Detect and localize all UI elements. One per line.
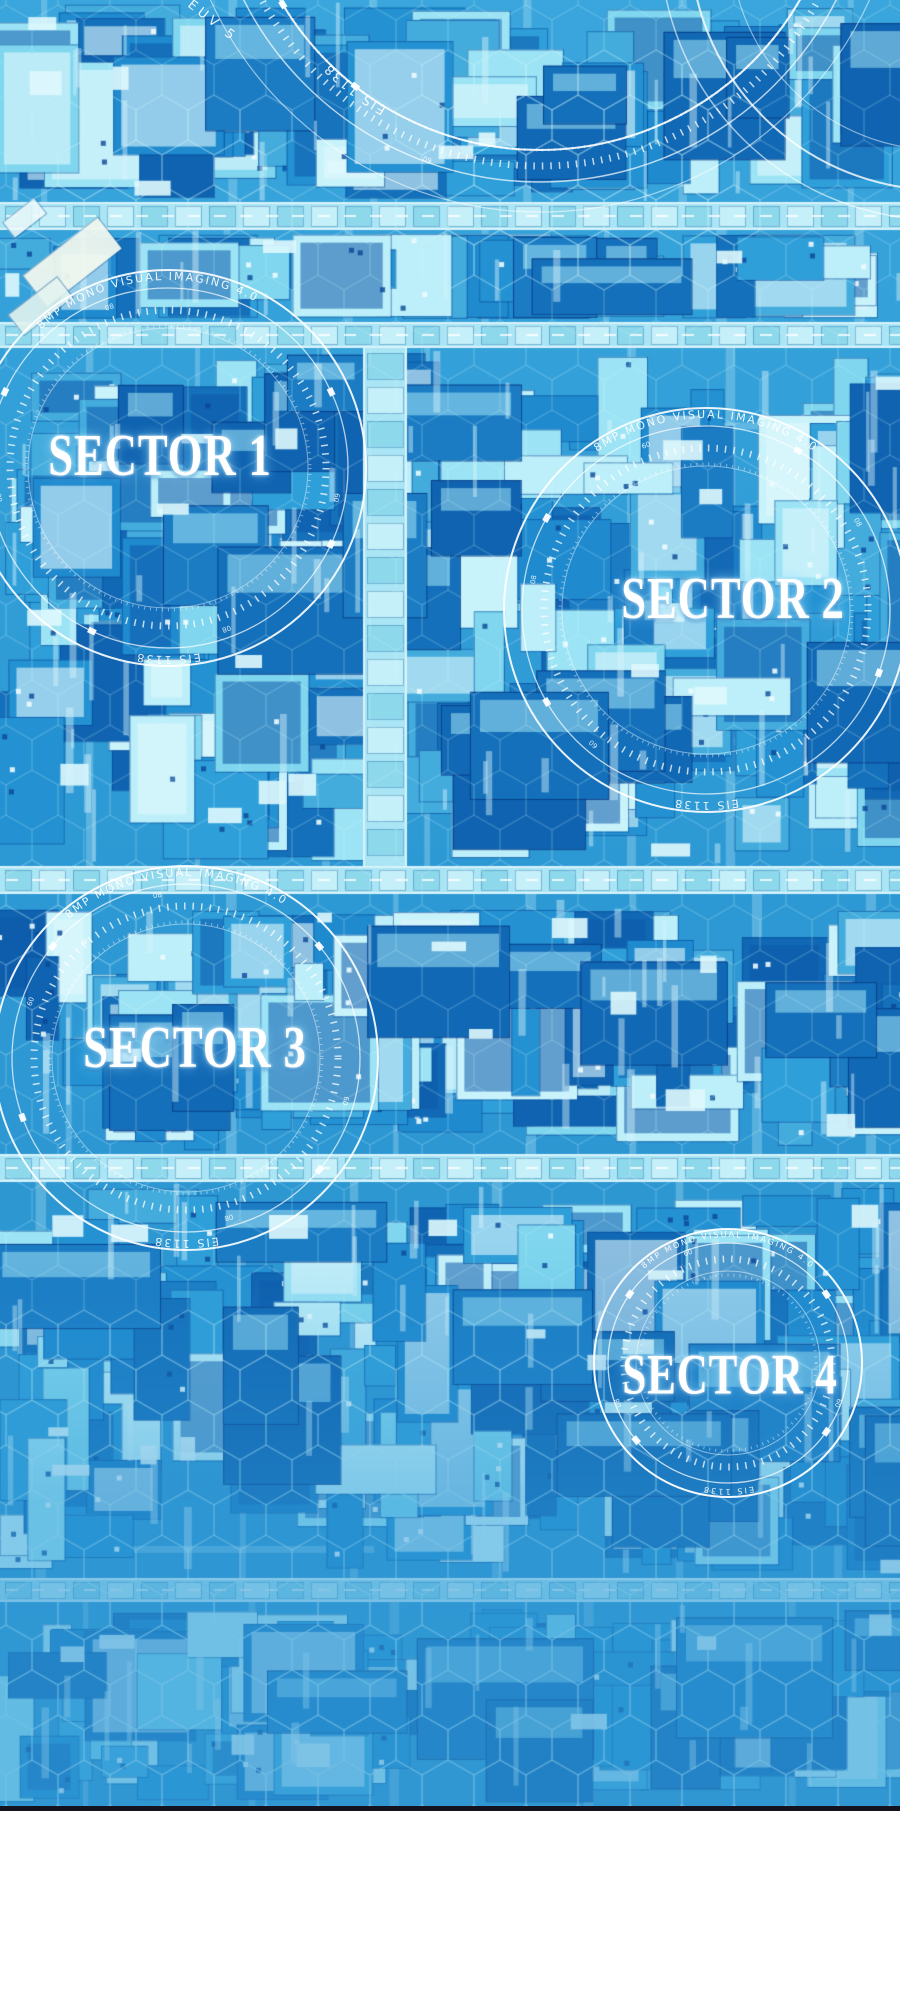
ring-marker bbox=[327, 387, 336, 397]
ring-tick-digit: 08 bbox=[104, 302, 115, 313]
ring-tick-digit: 08 bbox=[529, 575, 538, 585]
ring-marker bbox=[542, 513, 551, 523]
footer-whitespace bbox=[0, 1811, 900, 2000]
sector-2-ring[interactable]: 600860088MP MONO VISUAL IMAGING 4.0EIS 1… bbox=[504, 408, 900, 812]
ring-marker bbox=[327, 539, 336, 549]
ring-tick-digit: 08 bbox=[613, 1397, 624, 1408]
city-map: 6008EIS 1138EUV 5600860088MP MONO VISUAL… bbox=[0, 0, 900, 1806]
ring-tick-digit: 08 bbox=[221, 623, 232, 634]
ring-tick-digit: 08 bbox=[852, 517, 863, 529]
ring-tick-digit: 60 bbox=[422, 154, 433, 165]
ring-marker bbox=[0, 387, 9, 397]
ring-tick-digit: 60 bbox=[26, 996, 37, 1007]
ring-tick-digit: 60 bbox=[340, 1095, 350, 1106]
ring-marker bbox=[18, 1113, 26, 1123]
ring-marker bbox=[875, 668, 883, 678]
hud-overlay: 6008EIS 1138EUV 5600860088MP MONO VISUAL… bbox=[0, 0, 900, 1806]
ring-tick-digit: 08 bbox=[223, 1212, 234, 1222]
ring-arc-text-bottom: EIS 1138 bbox=[672, 796, 739, 812]
sector-3-ring[interactable]: 600860088MP MONO VISUAL IMAGING 4.0EIS 1… bbox=[0, 866, 378, 1250]
ring-marker bbox=[87, 627, 97, 636]
top-ring: 6008EIS 1138EUV 5 bbox=[178, 0, 900, 212]
ring-arc-text-euv: EUV 5 bbox=[185, 0, 241, 45]
ring-arc-text-top: 8MP MONO VISUAL IMAGING 4.0 bbox=[640, 1230, 817, 1270]
ring-tick-digit: 60 bbox=[0, 493, 4, 503]
ring-arc-text-bottom: EIS 1138 bbox=[152, 1234, 219, 1250]
ring-arc-text-top: 8MP MONO VISUAL IMAGING 4.0 bbox=[62, 866, 290, 921]
ring-tick-digit: 60 bbox=[588, 738, 600, 750]
ring-tick-digit: 08 bbox=[152, 891, 162, 900]
sector-1-ring[interactable]: 600860088MP MONO VISUAL IMAGING 4.0EIS 1… bbox=[0, 270, 366, 666]
ring-tick-digit: 60 bbox=[332, 493, 341, 503]
ring-arc-text-bottom: EIS 1138 bbox=[701, 1484, 755, 1496]
ring-arc-text-bottom: EIS 1138 bbox=[134, 650, 201, 666]
top-right-ring bbox=[660, 0, 900, 220]
ring-tick-digit: 60 bbox=[833, 1397, 844, 1408]
sector-4-ring[interactable]: 6008608MP MONO VISUAL IMAGING 4.0EIS 113… bbox=[594, 1229, 862, 1497]
ring-tick-digit: 60 bbox=[682, 1248, 693, 1259]
ring-marker bbox=[793, 446, 803, 455]
ring-arc-text-top: 8MP MONO VISUAL IMAGING 4.0 bbox=[591, 408, 820, 454]
ring-marker bbox=[542, 697, 551, 707]
scene: 6008EIS 1138EUV 5600860088MP MONO VISUAL… bbox=[0, 0, 900, 2000]
ring-arc-text-top: 8MP MONO VISUAL IMAGING 4.0 bbox=[34, 270, 261, 332]
ring-tick-digit: 60 bbox=[641, 440, 652, 451]
